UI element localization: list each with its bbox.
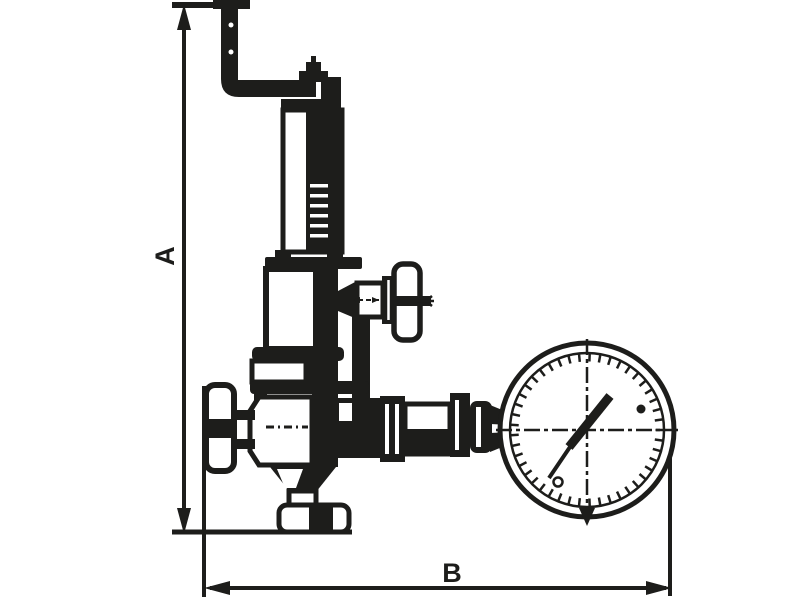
technical-drawing-canvas: A B bbox=[0, 0, 800, 598]
gauge-adapter-rib bbox=[476, 407, 481, 447]
dimension-b-label: B bbox=[442, 558, 462, 588]
pipe-weld-dot bbox=[229, 23, 234, 28]
mid-flanges bbox=[252, 347, 344, 383]
valve-dimension-diagram: A B bbox=[0, 0, 800, 598]
gauge-tick bbox=[579, 354, 580, 362]
union-nut-rib bbox=[385, 404, 389, 454]
outlet-fittings bbox=[338, 393, 512, 462]
outlet-pipe-shade bbox=[407, 429, 448, 453]
housing-top-nub bbox=[306, 62, 321, 72]
gauge-set-point-dot bbox=[637, 405, 646, 414]
pipe-elbow bbox=[221, 5, 316, 97]
gauge-tick bbox=[599, 498, 600, 506]
mid-flange-shade bbox=[304, 359, 338, 383]
gauge-tick bbox=[655, 419, 663, 420]
chamber-shade bbox=[314, 269, 338, 352]
gauge-tick bbox=[599, 355, 600, 363]
housing-tube-shade bbox=[306, 112, 342, 252]
body-shell bbox=[250, 397, 312, 465]
bottom-outlet-shade bbox=[309, 504, 333, 533]
gauge-tick bbox=[655, 440, 663, 441]
relief-pipe bbox=[213, 0, 316, 97]
outlet-connector-highlight bbox=[339, 403, 352, 421]
dimension-b-arrow-left bbox=[204, 581, 230, 595]
gauge-needle-hub-ring bbox=[554, 478, 563, 487]
body-shade bbox=[312, 394, 338, 467]
union-nut bbox=[380, 396, 405, 462]
coupling-nut-rib bbox=[455, 400, 459, 450]
union-nut-rib bbox=[395, 404, 399, 454]
gauge-tick bbox=[512, 444, 520, 446]
gauge-tick bbox=[512, 414, 520, 416]
pipe-weld-dot bbox=[229, 50, 234, 55]
chamber-box bbox=[266, 269, 316, 349]
gauge-tick bbox=[511, 435, 519, 436]
coupling-nut bbox=[450, 393, 470, 457]
gauge-tick bbox=[511, 425, 519, 426]
body-top-flange bbox=[250, 381, 369, 394]
pressure-gauge bbox=[496, 339, 678, 526]
dimension-a-label: A bbox=[150, 246, 180, 266]
mid-flange-box bbox=[252, 361, 306, 382]
gauge-tick bbox=[579, 498, 580, 506]
inlet-flange-band bbox=[206, 419, 234, 438]
